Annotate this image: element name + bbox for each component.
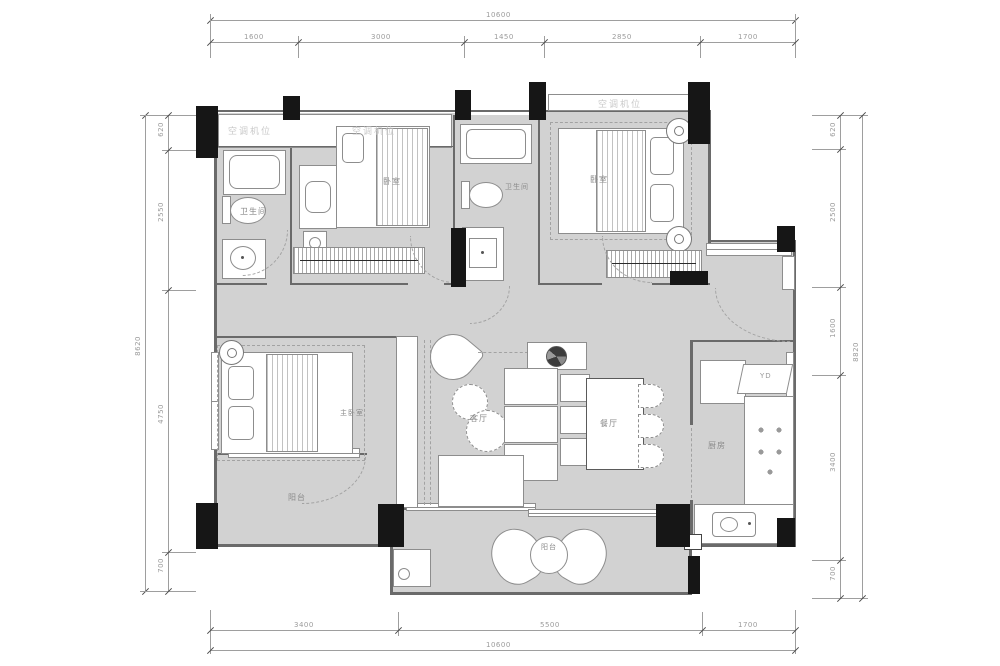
column (378, 504, 404, 547)
dim-line (210, 650, 795, 651)
dim-ext (795, 610, 796, 654)
vanity-drain-bath2 (481, 251, 484, 254)
column (777, 226, 795, 252)
column (283, 96, 300, 120)
dim-right-total: 8820 (852, 342, 860, 362)
ceiling-lamp-icon (666, 226, 692, 252)
column (777, 518, 795, 547)
dim-right-seg: 620 (829, 122, 837, 137)
curtain-line-living (424, 340, 425, 505)
dim-left-seg: 2550 (157, 202, 165, 222)
wall-bed2-bottom-a (292, 283, 408, 285)
dining-chair-1 (638, 384, 664, 408)
dim-bottom-seg: 1700 (738, 621, 758, 629)
entry-door-jamb (782, 256, 795, 290)
ac-platform-label: 空调机位 (598, 97, 642, 110)
dining-chair-2 (638, 414, 664, 438)
master-blanket (266, 354, 318, 452)
room-label-bathroom1: 卫生间 (240, 206, 267, 217)
dim-top-seg: 1700 (738, 33, 758, 41)
wardrobe-rod-bed2 (300, 260, 418, 261)
kitchen-sink-basin (720, 517, 738, 532)
column (196, 106, 218, 158)
dim-ext (298, 36, 299, 58)
ac-platform-label: 空调机位 (228, 124, 272, 137)
wall-bath1-bottom (215, 283, 267, 285)
column (688, 556, 700, 594)
washing-machine-door (398, 568, 410, 580)
dim-bottom-seg: 3400 (294, 621, 314, 629)
sightline-dash (478, 352, 528, 353)
room-label-kitchen: 厨房 (708, 440, 726, 451)
dim-top-seg: 3000 (371, 33, 391, 41)
dim-top-seg: 1450 (494, 33, 514, 41)
washing-machine (393, 549, 431, 587)
dim-ext (464, 36, 465, 58)
wall-left (214, 110, 217, 547)
dim-ext (544, 36, 545, 58)
dim-bottom-seg: 5500 (540, 621, 560, 629)
dim-ext (702, 612, 703, 636)
toilet-bowl-bath2 (469, 182, 503, 208)
room-label-bedroom3: 卧室 (590, 174, 608, 185)
shower-tray-bath2 (466, 129, 526, 159)
dim-left-total: 8620 (134, 336, 142, 356)
dim-line (840, 115, 841, 598)
bed2-pillow (342, 133, 364, 163)
dim-left-seg: 700 (157, 558, 165, 573)
ceiling-lamp-icon (219, 340, 244, 365)
dim-right-seg: 2500 (829, 202, 837, 222)
bathtub-inner (229, 155, 280, 189)
room-label-bedroom2: 卧室 (383, 176, 401, 187)
dim-top-seg: 1600 (244, 33, 264, 41)
dim-top-total: 10600 (486, 11, 511, 19)
dim-right-seg: 1600 (829, 318, 837, 338)
dim-line (168, 115, 169, 591)
sofa-seat-2 (504, 406, 558, 443)
wall-bath2-bed3 (538, 110, 540, 285)
column (688, 82, 710, 144)
column (455, 90, 471, 120)
master-pillow-a (228, 366, 254, 400)
room-label-master: 主卧室 (340, 408, 364, 418)
room-label-dining: 餐厅 (600, 418, 618, 429)
column (529, 82, 546, 120)
dim-ext (210, 610, 211, 654)
dim-ext (700, 36, 701, 58)
column (451, 228, 466, 287)
toilet-tank (222, 196, 231, 224)
room-label-living: 客厅 (470, 413, 488, 424)
desk-chair-bed2 (305, 181, 331, 213)
dim-line (862, 115, 863, 598)
dim-ext (398, 612, 399, 636)
room-label-balcony-west: 阳台 (288, 492, 306, 503)
dim-left-seg: 4750 (157, 404, 165, 424)
dim-line (145, 115, 146, 591)
kitchen-faucet (748, 522, 751, 525)
dim-right-seg: 3400 (829, 452, 837, 472)
wall-bottom-left (215, 544, 392, 547)
wall-kitchen-left-a (690, 340, 693, 425)
flue-label: YD (760, 372, 772, 380)
column (670, 271, 708, 285)
decor-plate-icon (546, 346, 567, 367)
dim-line (210, 20, 795, 21)
stove-burners (752, 420, 788, 482)
dim-bottom-total: 10600 (486, 641, 511, 649)
floor-plan-canvas: 卫生间 卧室 卫生间 卧室 主卧室 (0, 0, 1000, 666)
dim-ext (795, 14, 796, 58)
bed3-pillow-b (650, 184, 674, 222)
bed3-pillow-a (650, 137, 674, 175)
dim-top-seg: 2850 (612, 33, 632, 41)
sofa-seat-1 (504, 368, 558, 405)
sofa-chaise (438, 455, 524, 507)
room-label-bathroom2: 卫生间 (505, 182, 529, 192)
column (656, 504, 690, 547)
wall-balcony-s-bottom (390, 592, 692, 595)
wall-bed3-bottom-a (540, 283, 602, 285)
master-pillow-b (228, 406, 254, 440)
dim-line (210, 630, 795, 631)
dim-left-seg: 620 (157, 122, 165, 137)
dim-right-seg: 700 (829, 566, 837, 581)
wall-master-top (215, 336, 398, 338)
dim-ext (210, 14, 211, 58)
kitchen-sliding-door (691, 428, 692, 498)
sliding-door-balcony-b (528, 509, 658, 517)
room-label-balcony-south: 阳台 (541, 542, 557, 552)
ac-platform-label: 空调机位 (352, 124, 396, 137)
dining-chair-3 (638, 444, 664, 468)
column (196, 503, 218, 549)
tv-wall-cabinet (396, 336, 418, 508)
